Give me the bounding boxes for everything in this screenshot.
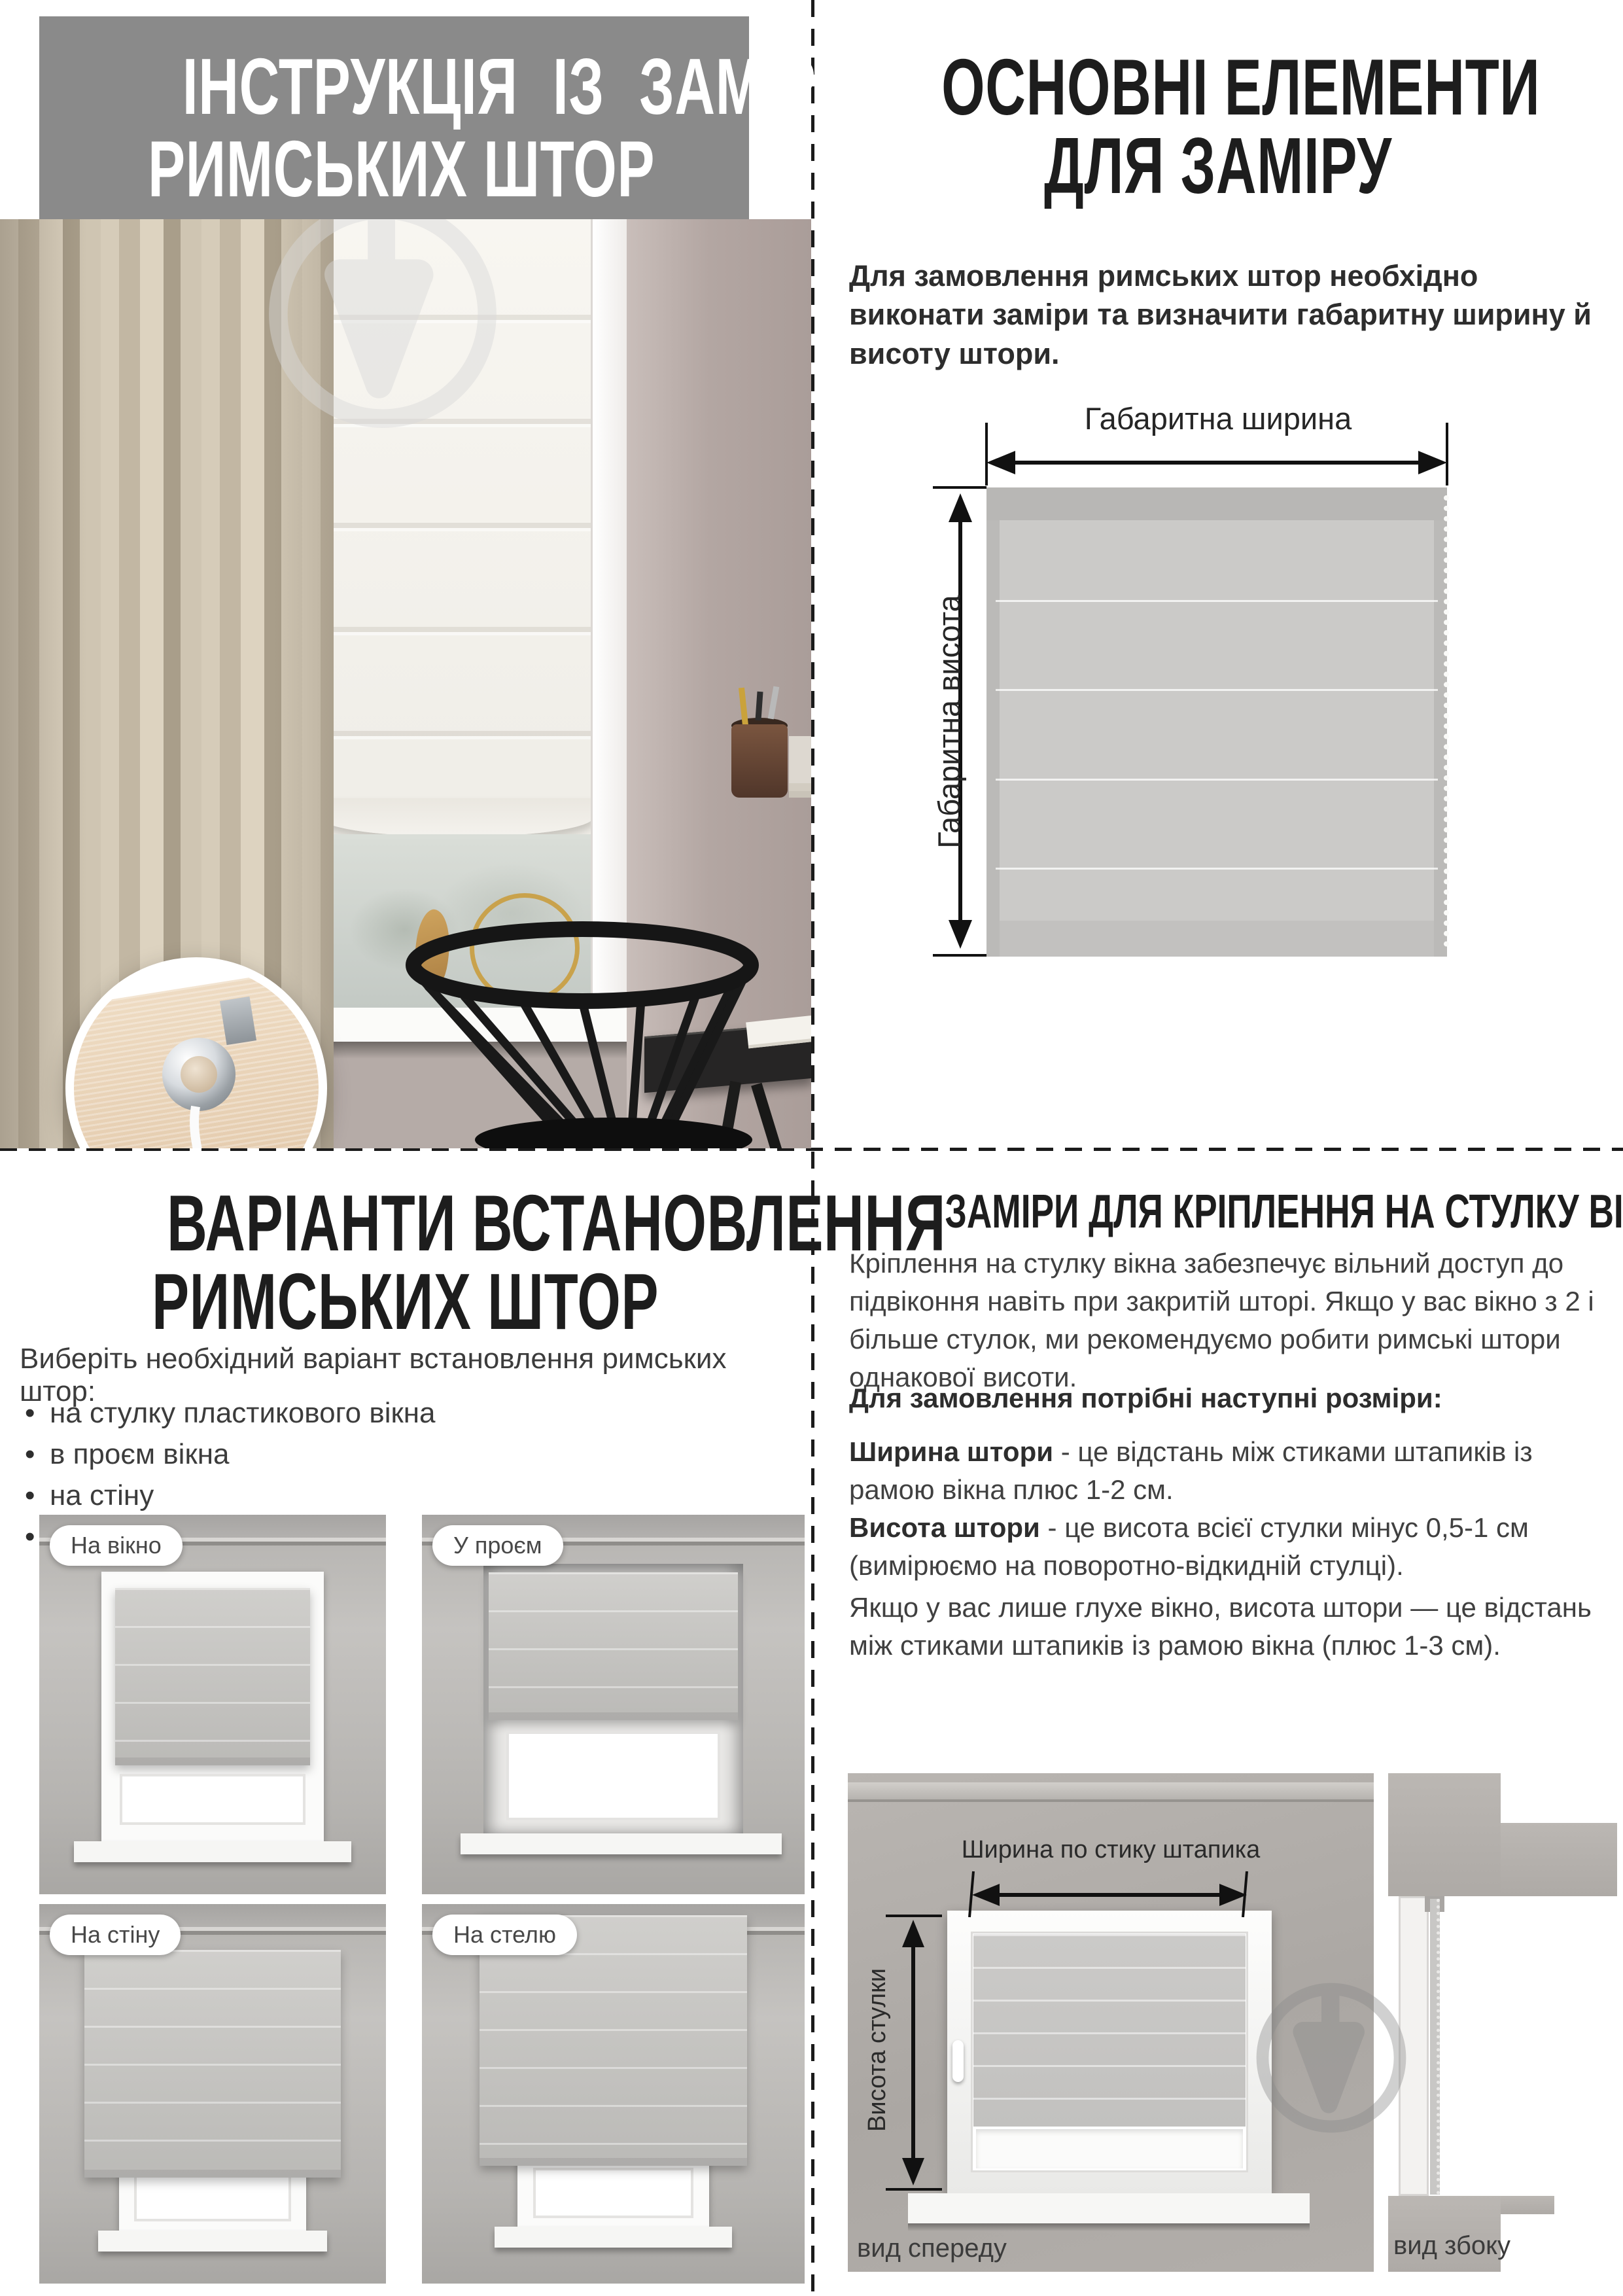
tile-sill [74,1841,351,1862]
cord [74,966,327,1148]
br-title: ЗАМІРИ ДЛЯ КРІПЛЕННЯ НА СТУЛКУ ВІКНА [813,1188,1623,1235]
br-paragraph-1: Кріплення на стулку вікна забезпечує віл… [849,1245,1613,1396]
chair-illustration [366,903,811,1148]
height-term: Висота штори [849,1512,1040,1543]
bl-title-line1: ВАРІАНТИ ВСТАНОВЛЕННЯ [0,1183,811,1263]
book-stack [789,736,811,798]
tile-glass [533,2168,694,2218]
tr-intro-text: Для замовлення римських штор необхідно в… [849,256,1611,373]
tile-window-frame [101,1572,323,1841]
fv-width-label: Ширина по стику штапика [848,1836,1374,1864]
list-item: •на стіну [25,1481,797,1510]
tile-on-wall: На стіну [39,1904,386,2284]
pencil-cup [731,724,788,798]
brand-watermark-icon [258,219,507,438]
br-paragraph-3: Якщо у вас лише глухе вікно, висота штор… [849,1589,1613,1665]
brand-watermark-icon [1249,1976,1413,2140]
bullet-icon: • [25,1440,50,1469]
bullet-icon: • [25,1481,50,1510]
tile-blind [115,1588,310,1766]
window-frame [591,219,631,1008]
tile-glass [506,1731,720,1820]
tile-label-badge: У проєм [432,1525,563,1566]
tile-label-badge: На стіну [50,1915,181,1955]
br-definitions: Ширина штори - це відстань між стиками ш… [849,1433,1613,1585]
wall-section [1388,1773,1501,1896]
fv-height-label: Висота стулки [864,1909,894,2191]
bl-title-line2: РИМСЬКИХ ШТОР [0,1262,811,1341]
side-view-caption: вид збоку [1393,2231,1510,2261]
tr-title-line1: ОСНОВНІ ЕЛЕМЕНТИ [813,47,1623,127]
dimension-arrows [916,412,1505,968]
tile-label-badge: На вікно [50,1525,183,1566]
interior-photo [0,219,811,1148]
window-recess [483,1564,744,1833]
tile-in-opening: У проєм [422,1515,805,1894]
detail-inset [65,957,327,1148]
side-view-diagram: вид збоку [1388,1773,1618,2272]
sv-blind-profile [1430,1899,1440,2195]
list-item: •в проєм вікна [25,1440,797,1469]
front-view-caption: вид спереду [857,2234,1007,2263]
title-banner: ІНСТРУКЦІЯ ІЗ ЗАМІРУ РИМСЬКИХ ШТОР [39,16,749,219]
tile-label-badge: На стелю [432,1915,577,1955]
tile-sill [495,2227,732,2248]
bullet-icon: • [25,1399,50,1428]
tr-title-line2: ДЛЯ ЗАМІРУ [813,126,1623,205]
tile-sill [98,2231,327,2252]
ceiling-section [1501,1823,1617,1896]
blind-hem [319,798,594,836]
tile-sill [461,1833,782,1854]
tile-blind [84,1950,341,2178]
height-definition: Висота штори - це висота всієї стулки мі… [849,1509,1613,1585]
width-term: Ширина штори [849,1436,1053,1467]
width-definition: Ширина штори - це відстань між стиками ш… [849,1433,1613,1509]
tile-on-ceiling: На стелю [422,1904,805,2284]
br-sizes-lead: Для замовлення потрібні наступні розміри… [849,1379,1613,1417]
main-title-line1: ІНСТРУКЦІЯ ІЗ ЗАМІРУ [39,46,749,126]
sill-step [1501,2196,1554,2214]
tile-glass [120,1774,306,1825]
tile-on-window: На вікно [39,1515,386,1894]
main-title-line2: РИМСЬКИХ ШТОР [39,129,749,209]
tile-blind [489,1572,739,1720]
list-item: •на стулку пластикового вікна [25,1399,797,1428]
diagram-height-label: Габаритна висота [931,578,964,866]
